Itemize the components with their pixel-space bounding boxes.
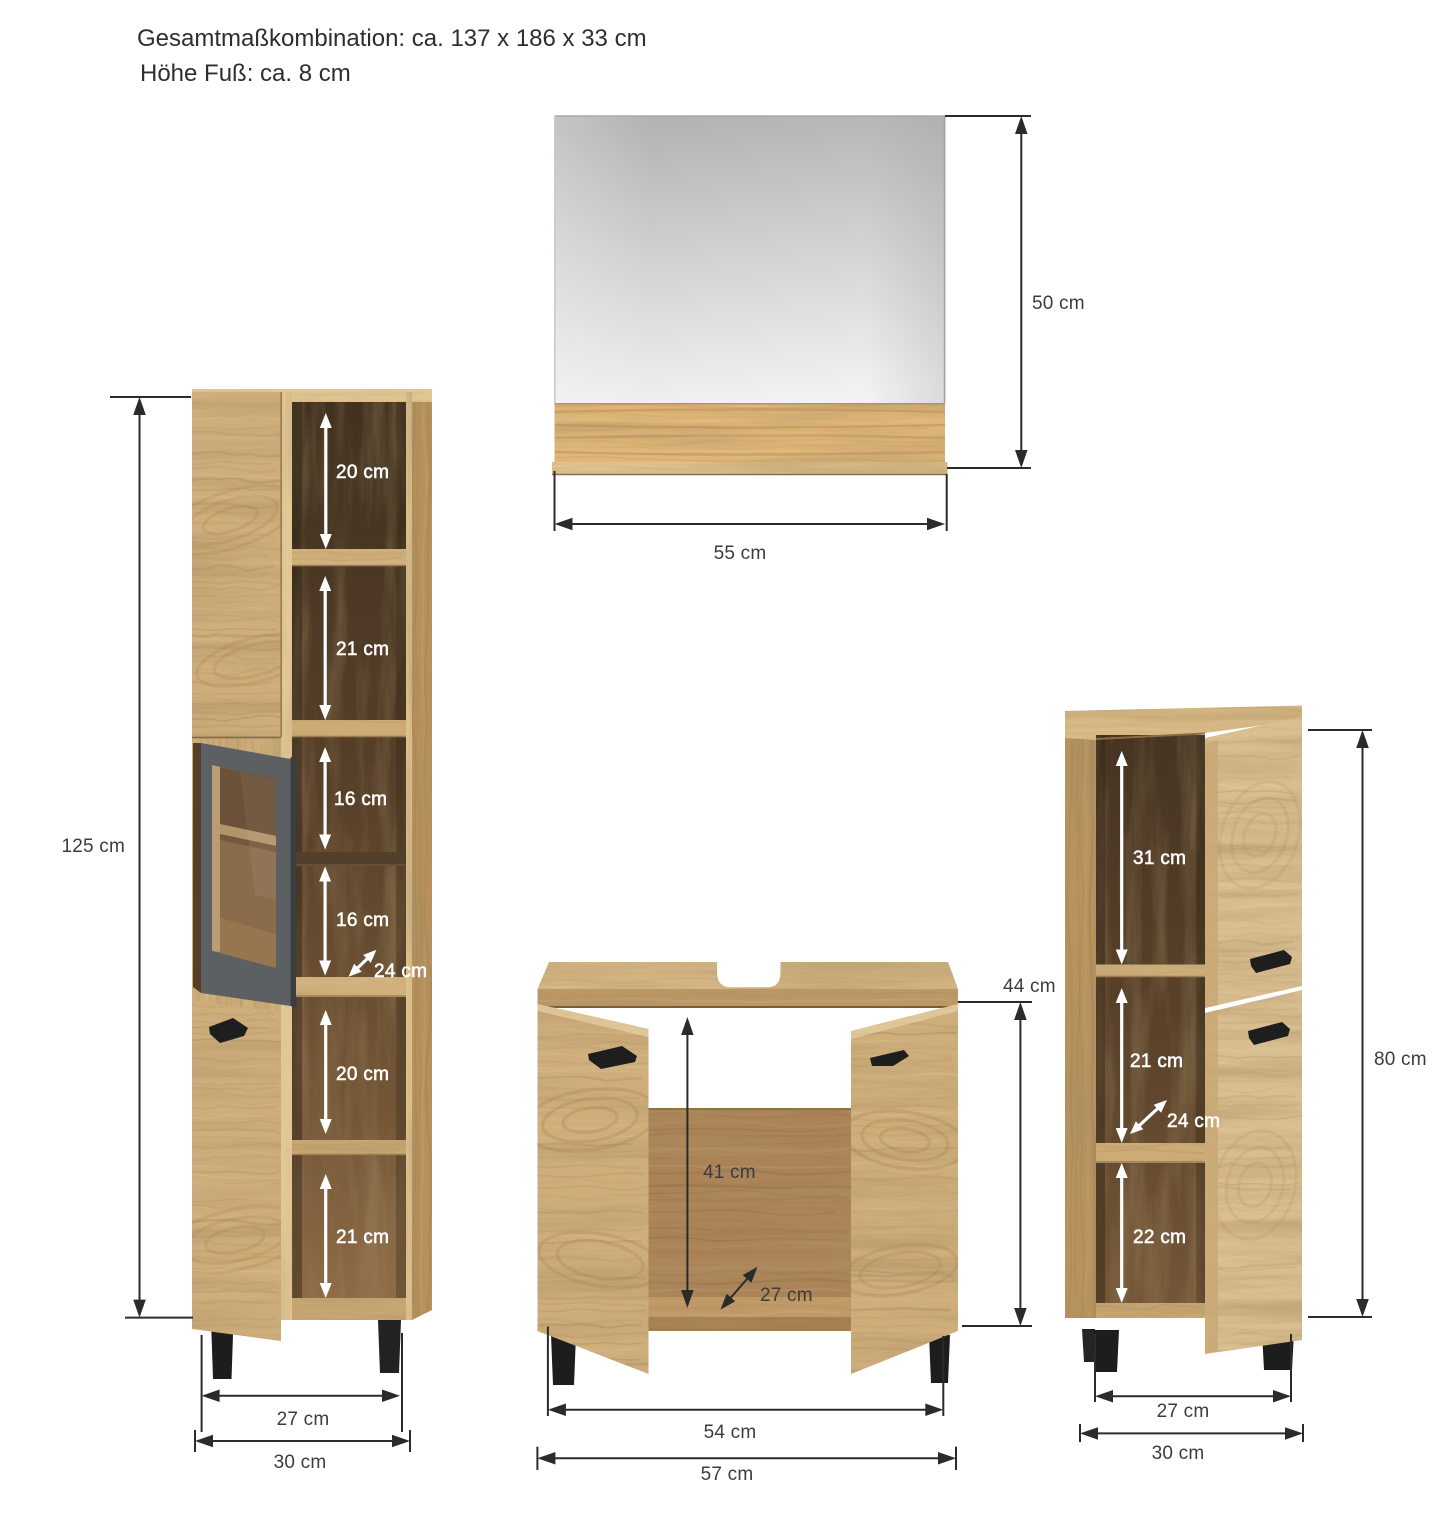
svg-text:21 cm: 21 cm bbox=[336, 639, 389, 660]
svg-text:20 cm: 20 cm bbox=[336, 462, 389, 483]
svg-text:27 cm: 27 cm bbox=[1157, 1401, 1210, 1422]
svg-text:57 cm: 57 cm bbox=[701, 1464, 754, 1485]
svg-text:24 cm: 24 cm bbox=[1167, 1111, 1220, 1132]
svg-text:20 cm: 20 cm bbox=[336, 1064, 389, 1085]
svg-text:41 cm: 41 cm bbox=[703, 1162, 756, 1183]
svg-text:80 cm: 80 cm bbox=[1374, 1049, 1427, 1070]
svg-text:22 cm: 22 cm bbox=[1133, 1227, 1186, 1248]
svg-text:54 cm: 54 cm bbox=[704, 1422, 757, 1443]
svg-text:24 cm: 24 cm bbox=[374, 961, 427, 982]
svg-text:16 cm: 16 cm bbox=[336, 910, 389, 931]
svg-text:Höhe Fuß: ca. 8 cm: Höhe Fuß: ca. 8 cm bbox=[140, 60, 351, 87]
svg-text:30 cm: 30 cm bbox=[1152, 1443, 1205, 1464]
svg-text:21 cm: 21 cm bbox=[336, 1227, 389, 1248]
svg-text:55 cm: 55 cm bbox=[714, 543, 767, 564]
svg-text:21 cm: 21 cm bbox=[1130, 1051, 1183, 1072]
svg-text:16 cm: 16 cm bbox=[334, 789, 387, 810]
svg-text:27 cm: 27 cm bbox=[277, 1409, 330, 1430]
svg-text:44 cm: 44 cm bbox=[1003, 976, 1056, 997]
svg-text:Gesamtmaßkombination: ca. 137: Gesamtmaßkombination: ca. 137 x 186 x 33… bbox=[137, 25, 647, 52]
svg-text:27 cm: 27 cm bbox=[760, 1285, 813, 1306]
svg-text:125 cm: 125 cm bbox=[61, 836, 125, 857]
svg-text:31 cm: 31 cm bbox=[1133, 848, 1186, 869]
svg-text:50 cm: 50 cm bbox=[1032, 293, 1085, 314]
svg-text:30 cm: 30 cm bbox=[274, 1452, 327, 1473]
